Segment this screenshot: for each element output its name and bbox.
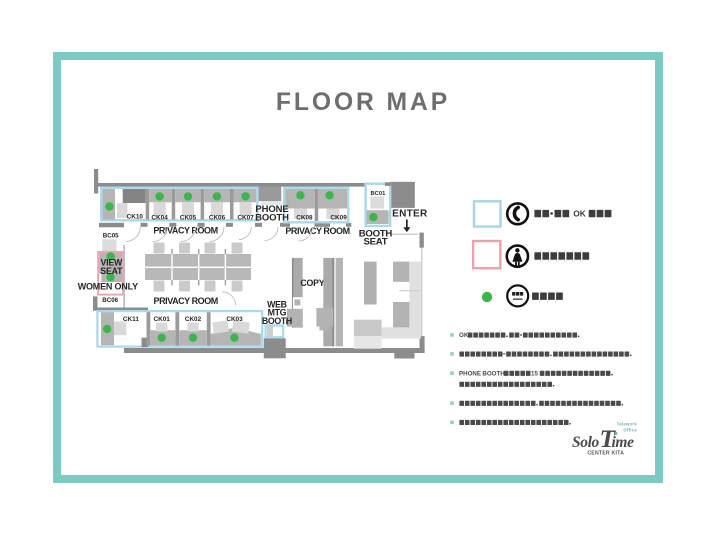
svg-text:ENTER: ENTER	[392, 208, 428, 219]
svg-text:BC01: BC01	[370, 191, 386, 197]
svg-text:FLOOR MAP: FLOOR MAP	[276, 89, 450, 116]
svg-text:BOOTH: BOOTH	[482, 370, 505, 377]
svg-text:CK05: CK05	[180, 214, 197, 221]
svg-text:BOOTH: BOOTH	[262, 316, 292, 326]
svg-text:CK08: CK08	[296, 214, 313, 221]
svg-text:ime: ime	[612, 434, 635, 451]
svg-text:BC05: BC05	[103, 232, 119, 239]
svg-text:Office: Office	[623, 427, 637, 432]
svg-text:BC06: BC06	[102, 297, 118, 304]
svg-text:CK02: CK02	[185, 316, 202, 323]
svg-text:CK01: CK01	[154, 316, 171, 323]
svg-text:PRIVACY ROOM: PRIVACY ROOM	[154, 296, 218, 306]
svg-text:SEAT: SEAT	[363, 236, 387, 247]
svg-text:Solo: Solo	[572, 434, 599, 451]
svg-text:OK: OK	[459, 332, 469, 339]
svg-text:Telework: Telework	[617, 422, 638, 427]
svg-text:CK09: CK09	[330, 214, 347, 221]
svg-text:OK: OK	[573, 209, 586, 219]
svg-text:CK10: CK10	[127, 214, 144, 221]
svg-text:CK07: CK07	[237, 214, 254, 221]
svg-text:15: 15	[531, 370, 538, 377]
svg-text:BOOTH: BOOTH	[255, 213, 289, 224]
svg-text:CK06: CK06	[209, 214, 226, 221]
svg-text:PRIVACY ROOM: PRIVACY ROOM	[285, 226, 349, 236]
svg-text:CK11: CK11	[123, 316, 139, 323]
svg-text:WOMEN ONLY: WOMEN ONLY	[78, 282, 138, 292]
svg-text:COPY: COPY	[300, 278, 324, 288]
svg-text:CENTER KITA: CENTER KITA	[587, 451, 624, 457]
svg-text:PHONE: PHONE	[459, 370, 481, 377]
svg-text:PRIVACY ROOM: PRIVACY ROOM	[153, 226, 217, 236]
svg-text:CK04: CK04	[151, 214, 168, 221]
svg-text:SEAT: SEAT	[100, 266, 123, 276]
svg-text:CK03: CK03	[226, 316, 243, 323]
